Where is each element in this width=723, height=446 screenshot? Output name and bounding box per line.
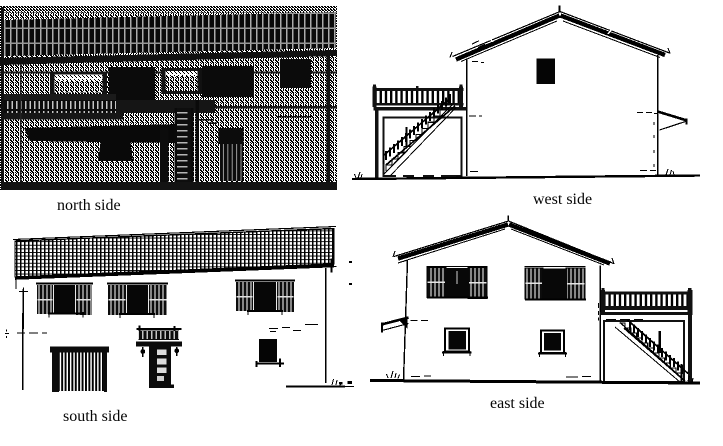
svg-text:east side: east side: [490, 395, 545, 412]
svg-text:west side: west side: [533, 191, 592, 208]
svg-text:south side: south side: [63, 408, 127, 425]
svg-text:north side: north side: [57, 197, 121, 214]
